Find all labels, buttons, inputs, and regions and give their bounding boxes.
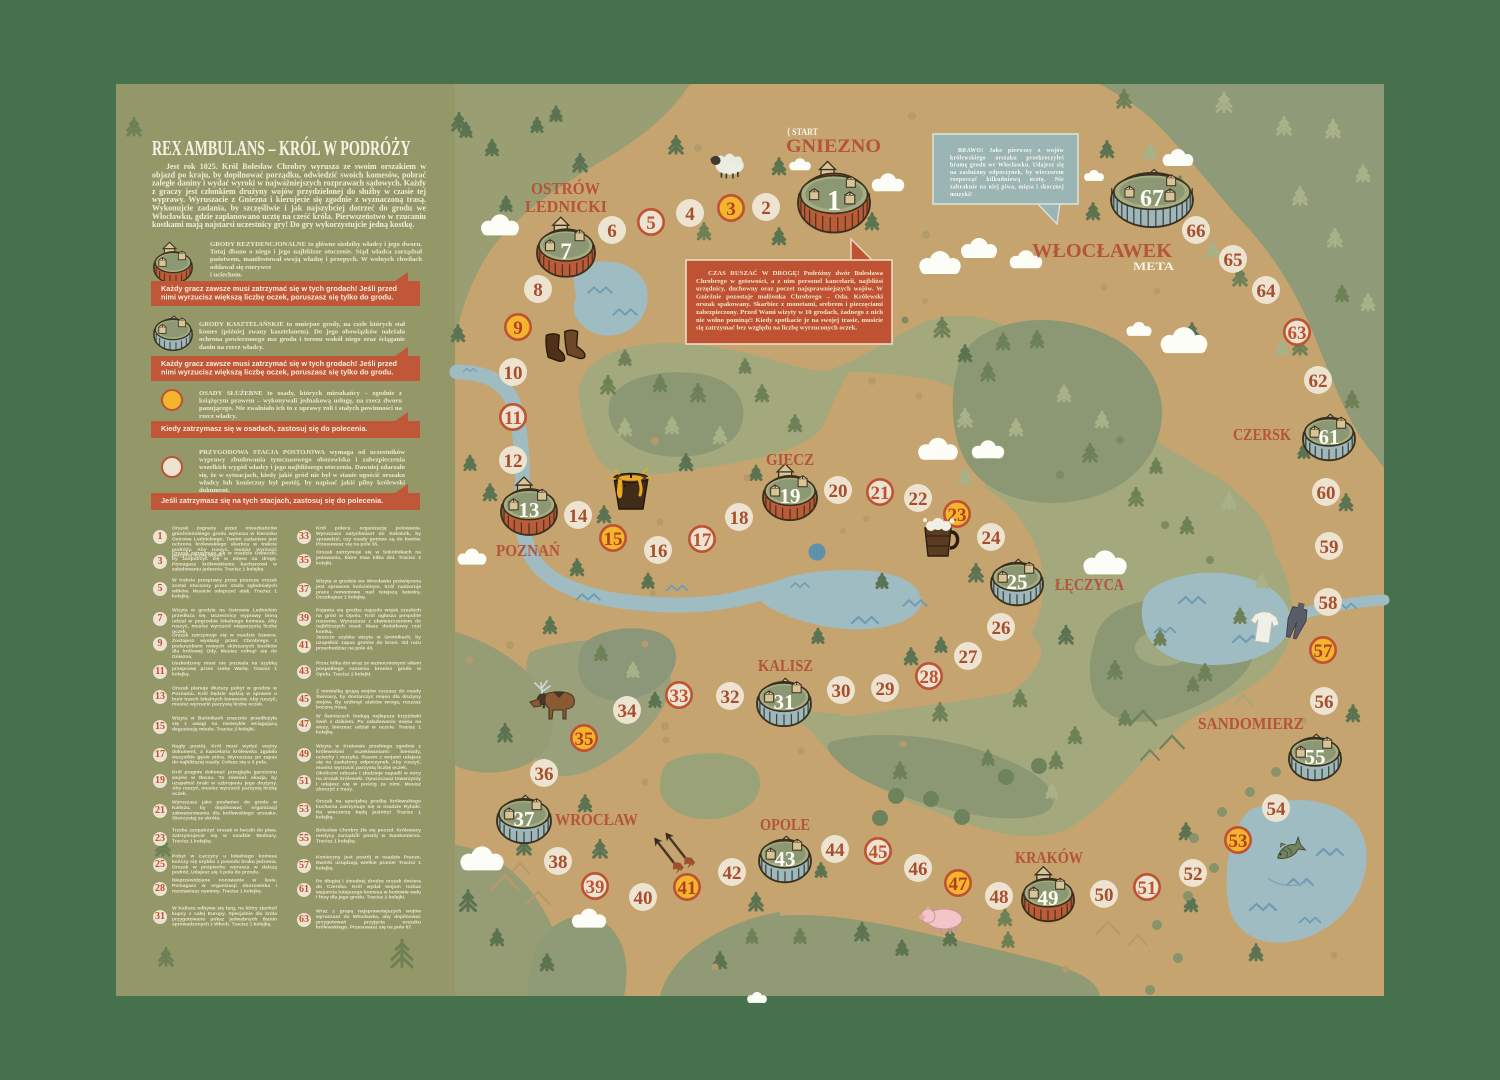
- svg-text:18: 18: [730, 508, 749, 529]
- svg-text:3: 3: [726, 199, 736, 220]
- svg-text:21: 21: [871, 483, 890, 504]
- svg-text:57: 57: [1314, 641, 1334, 662]
- svg-text:15: 15: [604, 529, 623, 550]
- svg-text:32: 32: [721, 687, 740, 708]
- svg-text:41: 41: [678, 878, 697, 899]
- svg-text:53: 53: [1229, 831, 1248, 852]
- svg-text:47: 47: [949, 874, 969, 895]
- svg-text:61: 61: [1319, 425, 1340, 449]
- svg-text:54: 54: [1267, 799, 1287, 820]
- svg-text:63: 63: [1288, 323, 1307, 344]
- svg-text:46: 46: [909, 859, 928, 880]
- svg-text:19: 19: [780, 484, 801, 508]
- svg-text:60: 60: [1317, 483, 1336, 504]
- svg-text:64: 64: [1257, 281, 1277, 302]
- svg-text:KALISZ: KALISZ: [758, 656, 813, 675]
- svg-text:4: 4: [685, 204, 695, 225]
- svg-text:9: 9: [513, 318, 523, 339]
- svg-text:8: 8: [533, 280, 543, 301]
- svg-text:KRAKÓW: KRAKÓW: [1015, 848, 1083, 867]
- svg-text:43: 43: [775, 847, 796, 871]
- svg-text:56: 56: [1315, 692, 1334, 713]
- svg-text:31: 31: [774, 690, 795, 714]
- svg-text:36: 36: [535, 764, 554, 785]
- svg-text:WŁOCŁAWEK: WŁOCŁAWEK: [1032, 240, 1172, 262]
- svg-text:12: 12: [504, 451, 523, 472]
- svg-text:44: 44: [826, 840, 846, 861]
- svg-text:28: 28: [920, 667, 939, 688]
- svg-text:45: 45: [869, 842, 888, 863]
- svg-text:30: 30: [832, 681, 851, 702]
- svg-text:50: 50: [1095, 885, 1114, 906]
- svg-text:POZNAŃ: POZNAŃ: [496, 541, 561, 560]
- svg-text:38: 38: [549, 852, 568, 873]
- svg-text:34: 34: [618, 701, 638, 722]
- svg-text:40: 40: [634, 888, 653, 909]
- svg-text:37: 37: [514, 807, 535, 831]
- svg-text:OPOLE: OPOLE: [760, 815, 810, 834]
- svg-text:52: 52: [1184, 864, 1203, 885]
- svg-text:25: 25: [1007, 570, 1028, 594]
- svg-text:CZERSK: CZERSK: [1233, 425, 1292, 444]
- svg-text:2: 2: [761, 198, 771, 219]
- svg-text:17: 17: [693, 530, 713, 551]
- svg-text:51: 51: [1138, 878, 1157, 899]
- svg-text:35: 35: [575, 729, 594, 750]
- svg-text:⟨ START: ⟨ START: [787, 127, 819, 138]
- svg-text:META: META: [1133, 261, 1175, 273]
- svg-text:49: 49: [1038, 886, 1059, 910]
- svg-text:1: 1: [827, 186, 841, 217]
- svg-text:11: 11: [504, 408, 522, 429]
- svg-text:65: 65: [1224, 250, 1243, 271]
- svg-text:59: 59: [1320, 537, 1339, 558]
- svg-text:66: 66: [1187, 221, 1206, 242]
- svg-text:WROCŁAW: WROCŁAW: [555, 810, 638, 829]
- svg-text:67: 67: [1140, 186, 1164, 212]
- svg-text:GNIEZNO: GNIEZNO: [786, 137, 881, 157]
- svg-text:33: 33: [670, 686, 689, 707]
- svg-text:48: 48: [990, 887, 1009, 908]
- svg-text:62: 62: [1309, 371, 1328, 392]
- svg-text:58: 58: [1319, 593, 1338, 614]
- svg-text:14: 14: [569, 506, 589, 527]
- svg-text:OSTRÓW: OSTRÓW: [531, 179, 600, 198]
- svg-text:55: 55: [1305, 745, 1326, 769]
- svg-text:27: 27: [959, 647, 979, 668]
- svg-text:24: 24: [982, 528, 1002, 549]
- svg-text:22: 22: [909, 489, 928, 510]
- svg-text:ŁĘCZYCA: ŁĘCZYCA: [1055, 575, 1125, 594]
- svg-text:6: 6: [607, 221, 617, 242]
- svg-text:39: 39: [586, 877, 605, 898]
- svg-text:42: 42: [723, 863, 742, 884]
- svg-text:16: 16: [649, 541, 668, 562]
- svg-text:26: 26: [992, 618, 1011, 639]
- svg-text:7: 7: [560, 239, 572, 264]
- svg-text:10: 10: [504, 363, 523, 384]
- svg-text:20: 20: [829, 481, 848, 502]
- svg-text:29: 29: [876, 679, 895, 700]
- svg-text:13: 13: [519, 498, 540, 522]
- svg-text:SANDOMIERZ: SANDOMIERZ: [1198, 714, 1304, 733]
- svg-text:LEDNICKI: LEDNICKI: [525, 197, 607, 216]
- svg-text:5: 5: [646, 213, 656, 234]
- svg-text:GIECZ: GIECZ: [766, 450, 814, 469]
